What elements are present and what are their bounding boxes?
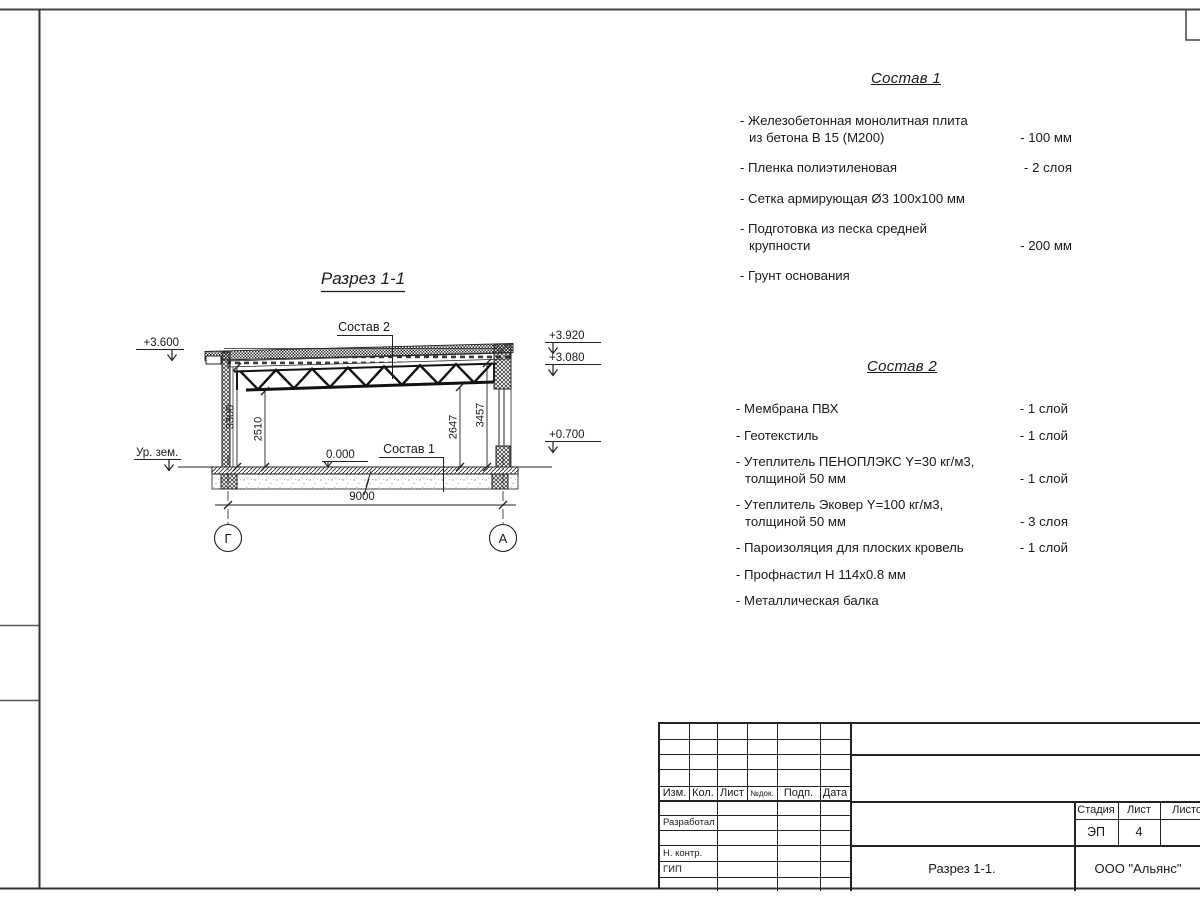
tb-col-data: Дата (820, 786, 850, 800)
svg-text:+3.920: +3.920 (549, 330, 585, 342)
tb-col-list: Лист (717, 786, 747, 800)
svg-text:Состав 2: Состав 2 (338, 320, 390, 334)
layer-item: - Пароизоляция для плоских кровель - 1 с… (736, 540, 1068, 557)
zero-level-mark: 0.000 (322, 449, 368, 467)
tb-row-gip: ГИП (660, 861, 720, 877)
layer-item: - Геотекстиль - 1 слой (736, 428, 1068, 445)
svg-text:+3.080: +3.080 (549, 352, 585, 364)
svg-text:0.000: 0.000 (326, 449, 355, 461)
composition-1-title: Состав 1 (740, 70, 1072, 87)
section-title-text: Разрез 1-1 (321, 269, 405, 288)
tb-col-podp: Подп. (777, 786, 820, 800)
layer-item: - Грунт основания (740, 268, 1072, 285)
svg-text:2510: 2510 (253, 417, 265, 441)
dim-2510: 2510 (253, 387, 270, 471)
tb-col-izm: Изм. (660, 786, 689, 800)
title-block: Изм. Кол. Лист №док. Подп. Дата Разработ… (658, 722, 1200, 889)
dim-3457: 3457 (475, 359, 492, 471)
composition-list-2: Состав 2 - Мембрана ПВХ - 1 слой - Геоте… (736, 358, 1068, 620)
axis-mark-left: Г (215, 525, 242, 552)
layer-item: - Подготовка из песка среднейкрупности -… (740, 221, 1072, 254)
svg-text:+0.700: +0.700 (549, 429, 585, 441)
section-title: Разрез 1-1 (321, 269, 405, 292)
layer-item: - Мембрана ПВХ - 1 слой (736, 401, 1068, 418)
tb-stage-value: ЭП (1074, 819, 1118, 845)
span-dimension-text: 9000 (349, 491, 375, 503)
elevation-right-low: +0.700 (545, 429, 601, 453)
right-wall (494, 344, 511, 467)
composition-2-title: Состав 2 (736, 358, 1068, 375)
tb-sheet-value: 4 (1118, 819, 1160, 845)
frame-corner-box (1186, 9, 1200, 40)
elevation-left-top: +3.600 (136, 337, 184, 361)
composition-list-1: Состав 1 - Железобетонная монолитная пли… (740, 70, 1072, 299)
layer-item: - Утеплитель Эковер Y=100 кг/м3,толщиной… (736, 497, 1068, 530)
svg-text:3457: 3457 (475, 403, 487, 427)
tb-col-kol: Кол. (689, 786, 717, 800)
tb-company: ООО "Альянс" (1074, 845, 1200, 891)
dim-2647: 2647 (448, 383, 465, 471)
tb-sheet-label: Лист (1118, 801, 1160, 819)
ground-level-mark: Ур. зем. (134, 447, 181, 471)
layer-item: - Пленка полиэтиленовая - 2 слоя (740, 160, 1072, 177)
tb-row-developed: Разработал (660, 815, 720, 830)
elevation-right-top: +3.920 (545, 330, 601, 354)
svg-text:2647: 2647 (448, 415, 460, 439)
tb-doc-title: Разрез 1-1. (850, 845, 1074, 891)
svg-text:+3.600: +3.600 (144, 337, 180, 349)
axis-mark-right: А (490, 525, 517, 552)
roof-edge-block (206, 356, 221, 364)
svg-text:Состав 1: Состав 1 (383, 442, 435, 456)
layer-item: - Металлическая балка (736, 593, 1068, 610)
svg-text:А: А (499, 531, 508, 546)
svg-text:3300: 3300 (225, 405, 237, 429)
layer-item: - Профнастил Н 114х0.8 мм (736, 567, 1068, 584)
layer-item: - Утеплитель ПЕНОПЛЭКС Y=30 кг/м3,толщин… (736, 454, 1068, 487)
tb-sheets-label: Листов (1160, 801, 1200, 819)
svg-text:Г: Г (224, 531, 231, 546)
tb-stage-label: Стадия (1074, 801, 1118, 819)
drawing-sheet: { "drawing": { "section_title": "Разрез … (0, 0, 1200, 900)
vertical-dimensions: 3300 2510 2647 3457 (225, 359, 492, 471)
roof-truss (234, 363, 497, 390)
layer-item: - Железобетонная монолитная плитаиз бето… (740, 113, 1072, 146)
svg-text:Ур. зем.: Ур. зем. (136, 447, 178, 459)
elevation-right-mid: +3.080 (545, 352, 601, 376)
layer-item: - Сетка армирующая Ø3 100х100 мм (740, 191, 1072, 208)
tb-row-ncontrol: Н. контр. (660, 845, 720, 861)
tb-col-ndok: №док. (747, 786, 777, 800)
